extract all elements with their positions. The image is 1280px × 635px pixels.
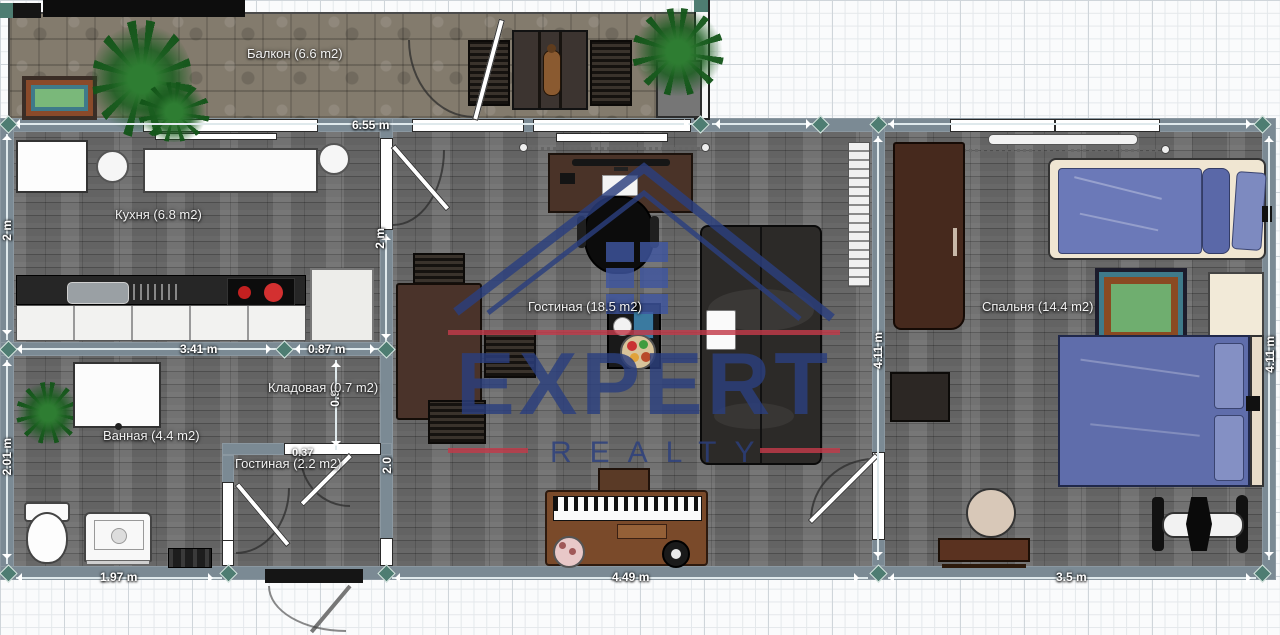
- entry-jamb-left: [222, 540, 234, 566]
- table-figure: [543, 50, 561, 96]
- arrow-down: [1264, 552, 1274, 562]
- toilet-bowl: [26, 512, 68, 564]
- arrow-down: [2, 554, 12, 564]
- double-bed-knob: [1246, 396, 1260, 411]
- balcony-top-bar: [43, 0, 245, 17]
- rug-ring-outer: [26, 80, 93, 116]
- balcony-plant-small[interactable]: [138, 82, 210, 142]
- stove-burner: [264, 283, 283, 302]
- room-label-hallway: Гостиная (2.2 m2): [235, 456, 342, 471]
- room-label-kitchen: Кухня (6.8 m2): [115, 207, 202, 222]
- dim-bedroom-left: 4.11 m: [871, 332, 885, 369]
- floor-plan-canvas: EXPERT REALTY: [0, 0, 1280, 635]
- bedroom-window-right[interactable]: [1055, 119, 1160, 132]
- wardrobe-handle: [953, 228, 957, 256]
- entry-door[interactable]: [265, 569, 363, 583]
- piano[interactable]: [545, 490, 708, 566]
- dim-line-kitchen-right: [385, 234, 387, 344]
- bedroom-curtain-rod: [952, 149, 1164, 152]
- room-label-bedroom: Спальня (14.4 m2): [982, 299, 1093, 314]
- curtain-rod-end: [1161, 145, 1170, 154]
- curtain-rod-end: [701, 143, 710, 152]
- bedroom-chair[interactable]: [890, 372, 950, 422]
- dim-hallway-right: 2.0: [380, 457, 394, 474]
- vanity-base: [86, 560, 150, 565]
- dim-bedroom-bottom: 3.5 m: [1056, 570, 1087, 584]
- rug-center: [1111, 284, 1171, 332]
- speaker-dot: [569, 548, 576, 555]
- balcony-table[interactable]: [512, 30, 588, 110]
- dim-bedroom-right: 4.11 m: [1263, 336, 1277, 373]
- kitchen-stove: [227, 278, 295, 306]
- single-bed-roll: [1202, 168, 1230, 254]
- double-bed-pillow: [1214, 343, 1244, 409]
- entry-door-arc: [268, 586, 346, 632]
- blanket-fold: [1080, 213, 1159, 232]
- room-label-balcony: Балкон (6.6 m2): [247, 46, 343, 61]
- bedroom-wardrobe[interactable]: [893, 142, 965, 330]
- kitchen-door-jamb[interactable]: [380, 138, 393, 230]
- piano-speaker-left: [553, 536, 585, 568]
- bathroom-plant[interactable]: [16, 382, 80, 444]
- kitchen-sink: [67, 282, 129, 304]
- living-radiator[interactable]: [848, 142, 870, 287]
- single-bed-knob: [1262, 206, 1272, 222]
- curtain-rod-end: [519, 143, 528, 152]
- bike-seat: [1186, 497, 1212, 551]
- rug-ring-outer: [1099, 272, 1183, 344]
- bedroom-nightstand[interactable]: [1208, 272, 1264, 344]
- kitchen-table[interactable]: [143, 148, 318, 193]
- bedroom-radiator[interactable]: [988, 134, 1138, 145]
- balcony-corner-block: [13, 3, 41, 18]
- living-window-sill: [556, 133, 668, 142]
- dim-line-bedroom-top: [888, 123, 1256, 125]
- arrow-up: [1264, 132, 1274, 142]
- bedroom-pouf[interactable]: [966, 488, 1016, 538]
- sink-drainboard: [133, 284, 177, 300]
- rug-ring-mid: [31, 85, 88, 111]
- table-figure-head: [547, 44, 556, 53]
- watermark-brand-bottom: REALTY: [550, 436, 772, 469]
- arrow-left: [710, 119, 720, 129]
- single-bed[interactable]: [1048, 158, 1266, 260]
- double-bed-pillow: [1214, 415, 1244, 481]
- kitchen-chair-round-left[interactable]: [96, 150, 129, 183]
- room-label-living: Гостиная (18.5 m2): [528, 299, 642, 314]
- bedroom-bench-base: [942, 564, 1026, 568]
- double-bed[interactable]: [1058, 335, 1250, 487]
- exercise-bike[interactable]: [1148, 495, 1252, 553]
- kitchen-cabinet-tall[interactable]: [310, 268, 374, 342]
- wheel-hub: [671, 549, 681, 559]
- dim-kitchen-right: 2 m: [373, 228, 387, 249]
- arrow-up: [331, 357, 341, 367]
- dim-storage-top: 0.87 m: [308, 342, 345, 356]
- arrow-down: [873, 552, 883, 562]
- piano-wheel-right: [662, 540, 690, 568]
- kitchen-chair-round-right[interactable]: [318, 143, 350, 175]
- balcony-corner-node: [0, 3, 13, 18]
- blanket-fold: [1080, 359, 1199, 378]
- arrow-right: [854, 573, 864, 583]
- piano-keys-white: [553, 511, 702, 521]
- balcony-rug[interactable]: [22, 76, 97, 120]
- blanket-fold: [1074, 176, 1162, 200]
- bedroom-bench[interactable]: [938, 538, 1030, 562]
- kitchen-fridge[interactable]: [16, 140, 88, 193]
- kitchen-cabinets[interactable]: [16, 305, 306, 341]
- speaker-dot: [559, 542, 566, 549]
- stove-burner: [238, 286, 251, 299]
- bathroom-vanity[interactable]: [84, 512, 152, 562]
- dim-kitchen-bottom: 3.41 m: [180, 342, 217, 356]
- room-label-bathroom: Ванная (4.4 m2): [103, 428, 200, 443]
- single-bed-blanket: [1058, 168, 1202, 254]
- piano-music-stand: [617, 524, 667, 539]
- bathroom-washer[interactable]: [73, 362, 161, 428]
- dim-kitchen-left: 2 m: [0, 220, 14, 241]
- rug-ring-mid: [1104, 277, 1178, 339]
- watermark-red-line-left: [448, 448, 528, 453]
- balcony-right-node: [694, 0, 708, 12]
- dim-bathroom-bottom: 1.97 m: [100, 570, 137, 584]
- rug-center: [35, 89, 84, 107]
- dim-balcony-top: 6.55 m: [352, 118, 389, 132]
- bedroom-window-left[interactable]: [950, 119, 1055, 132]
- balcony-chair-right[interactable]: [590, 40, 632, 106]
- bathroom-door-jamb[interactable]: [222, 482, 234, 544]
- dim-line-top-mid: [712, 123, 816, 125]
- double-bed-headboard: [1250, 335, 1264, 487]
- hallway-living-jamb[interactable]: [380, 538, 393, 566]
- balcony-door-threshold[interactable]: [412, 119, 524, 132]
- arrow-down: [2, 330, 12, 340]
- bathroom-bench[interactable]: [168, 548, 212, 568]
- table-runner-line: [538, 32, 541, 108]
- kitchen-countertop[interactable]: [16, 275, 306, 305]
- watermark-brand-top: EXPERT: [456, 334, 832, 433]
- balcony-pot-plant[interactable]: [632, 8, 724, 96]
- dim-line-kitchen-bottom: [16, 348, 280, 350]
- dim-bathroom-left: 2.01 m: [0, 438, 14, 475]
- blanket-fold: [1090, 423, 1200, 436]
- arrow-down: [331, 441, 341, 451]
- room-label-storage: Кладовая (0.7 m2): [268, 380, 378, 395]
- watermark-logo: EXPERT REALTY: [448, 162, 840, 474]
- dim-living-bottom: 4.49 m: [612, 570, 649, 584]
- living-curtain-rod: [524, 147, 706, 150]
- arrow-right: [208, 573, 218, 583]
- living-window[interactable]: [533, 119, 691, 132]
- vanity-drain: [111, 528, 127, 544]
